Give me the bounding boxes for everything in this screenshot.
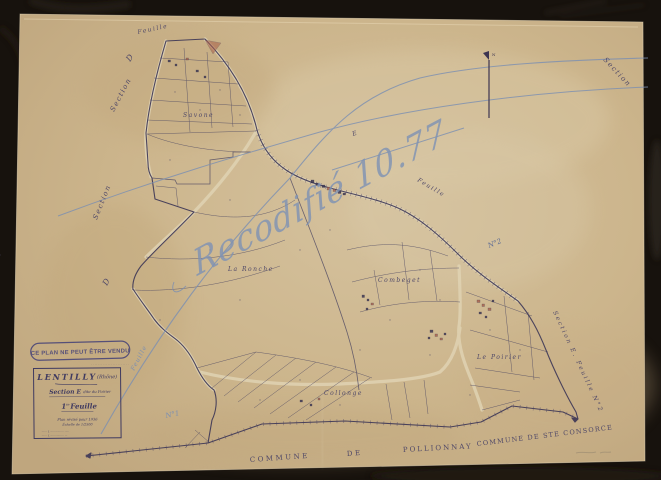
title-commune: LENTILLY (36, 371, 97, 382)
north-letter: N (492, 52, 496, 57)
scanned-cadastral-plan: N Recodifié 10.77 Feuille D Section Sect… (0, 0, 661, 480)
title-departement: (Rhône) (97, 373, 117, 380)
map-canvas: N Recodifié 10.77 Feuille D Section Sect… (0, 0, 661, 480)
title-block-margin-note: · · · · · · · · · · · · · · · · · · · · … (91, 363, 128, 366)
title-fine-print-2: ······ { ··············· ··· (42, 433, 68, 437)
title-section: Section E (49, 389, 81, 396)
title-section-suffix: dite du Poirier (83, 389, 111, 394)
place-savone: Savone (183, 112, 214, 119)
place-collonge: Collonge (324, 390, 363, 397)
title-sheet-sup: re (66, 403, 70, 407)
title-sheet-word: Feuille (69, 401, 97, 410)
place-le-poirier: Le Poirier (476, 354, 522, 361)
title-revision: Plan révisé pour 1936 (56, 417, 98, 421)
label-de: DE (347, 449, 363, 458)
place-la-ronche: La Ronche (227, 266, 274, 273)
place-combeget: Combeget (378, 277, 421, 284)
title-scale: Échelle de 1/2500 (61, 421, 92, 426)
